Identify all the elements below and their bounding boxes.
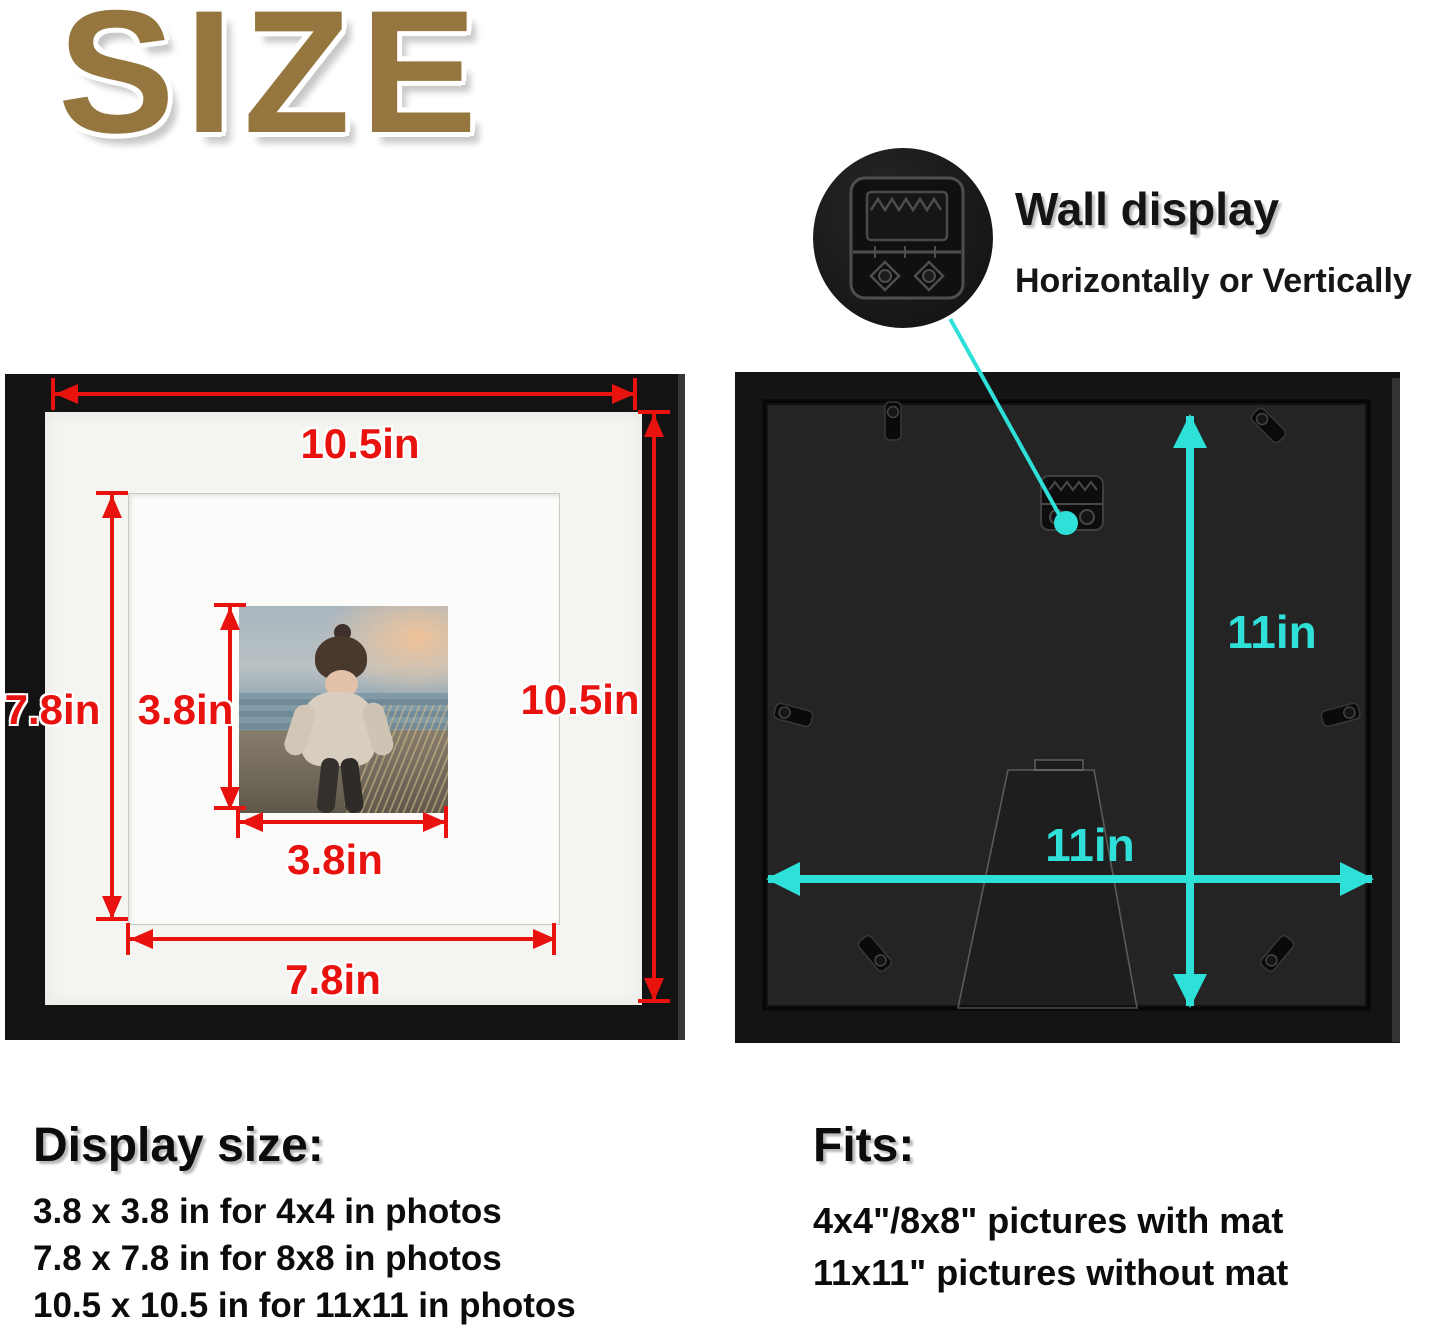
product-size-infographic: SIZE [0, 0, 1445, 1332]
wall-display-heading: Wall display [1015, 182, 1279, 236]
mat-width-label: 7.8in [233, 956, 433, 1004]
back-frame [735, 372, 1400, 1043]
photo [239, 606, 448, 813]
mat-width-tick-left [126, 923, 130, 955]
frame-height-tick-top [638, 410, 670, 414]
page-title: SIZE [58, 0, 487, 173]
mat-width-arrow [130, 937, 556, 941]
photo-height-tick-bottom [214, 806, 246, 810]
frame-width-arrow [55, 392, 635, 396]
back-height-label: 11in [1212, 605, 1332, 659]
photo-width-tick-right [444, 806, 448, 838]
photo-height-label: 3.8in [128, 686, 243, 734]
mat-height-tick-bottom [96, 917, 128, 921]
back-width-label: 11in [1030, 818, 1150, 872]
child-sweater [301, 692, 375, 766]
callout-leader-dot [1054, 511, 1078, 535]
fits-line: 11x11" pictures without mat [813, 1247, 1288, 1299]
frame-width-tick-right [633, 378, 637, 410]
photo-child [239, 606, 448, 813]
mat-height-arrow [110, 495, 114, 919]
photo-width-arrow [240, 820, 446, 824]
fits-line: 4x4"/8x8" pictures with mat [813, 1195, 1288, 1247]
wall-display-subheading: Horizontally or Vertically [1015, 262, 1412, 301]
fits-lines: 4x4"/8x8" pictures with mat 11x11" pictu… [813, 1195, 1288, 1299]
photo-width-label: 3.8in [235, 836, 435, 884]
mat-width-tick-right [552, 923, 556, 955]
back-frame-details [735, 372, 1400, 1043]
corner-clip-icon [885, 402, 901, 440]
display-size-line: 10.5 x 10.5 in for 11x11 in photos [33, 1282, 576, 1329]
sawtooth-hanger-large-icon [813, 148, 993, 328]
display-size-line: 3.8 x 3.8 in for 4x4 in photos [33, 1188, 576, 1235]
child-leg-right [340, 757, 365, 813]
mat-height-tick-top [96, 491, 128, 495]
frame-height-label: 10.5in [480, 676, 680, 724]
back-height-arrow [1186, 416, 1194, 1006]
mat-height-label: 7.8in [0, 686, 110, 734]
fits-heading: Fits: [813, 1118, 914, 1173]
photo-height-tick-top [214, 603, 246, 607]
hanger-inset-circle [813, 148, 993, 328]
back-width-arrow [768, 875, 1372, 883]
frame-height-tick-bottom [638, 999, 670, 1003]
frame-width-label: 10.5in [260, 420, 460, 468]
display-size-lines: 3.8 x 3.8 in for 4x4 in photos 7.8 x 7.8… [33, 1188, 576, 1329]
display-size-heading: Display size: [33, 1118, 324, 1173]
display-size-line: 7.8 x 7.8 in for 8x8 in photos [33, 1235, 576, 1282]
photo-width-tick-left [236, 806, 240, 838]
frame-width-tick-left [51, 378, 55, 410]
